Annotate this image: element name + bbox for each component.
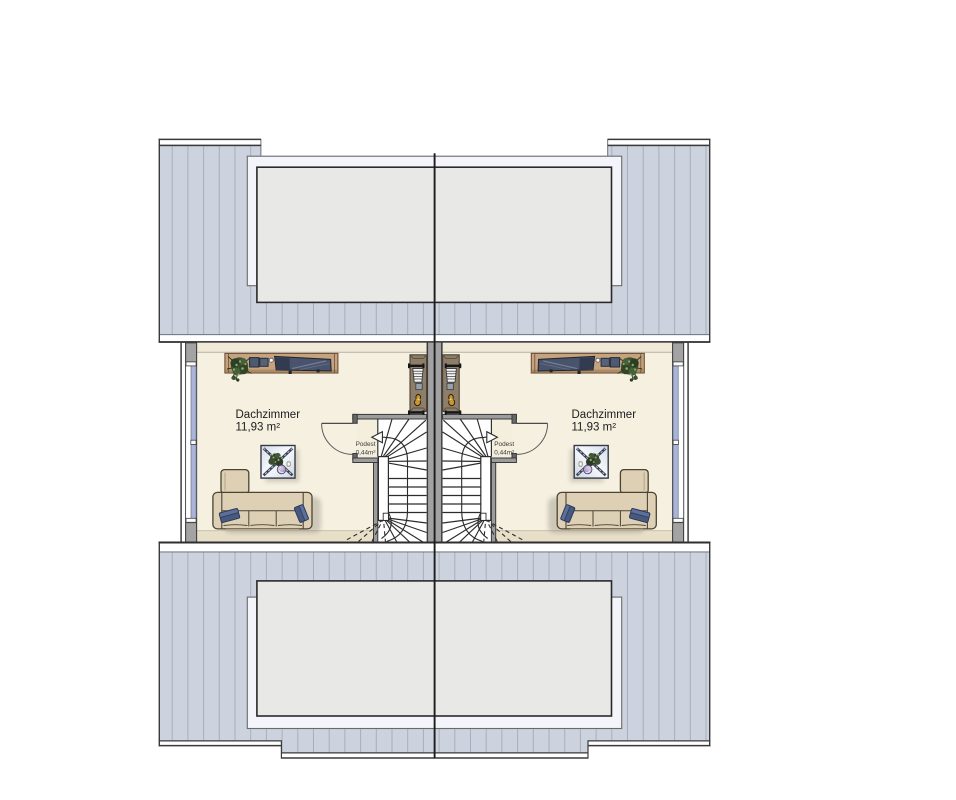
svg-text:11,93 m²: 11,93 m²: [236, 421, 281, 433]
svg-text:0,44m²: 0,44m²: [356, 450, 376, 457]
svg-text:11,93 m²: 11,93 m²: [572, 421, 617, 433]
svg-text:Podest: Podest: [356, 441, 376, 448]
svg-text:Dachzimmer: Dachzimmer: [236, 409, 301, 421]
svg-text:Dachzimmer: Dachzimmer: [572, 409, 637, 421]
svg-text:0,44m²: 0,44m²: [494, 450, 514, 457]
svg-text:Podest: Podest: [494, 441, 514, 448]
